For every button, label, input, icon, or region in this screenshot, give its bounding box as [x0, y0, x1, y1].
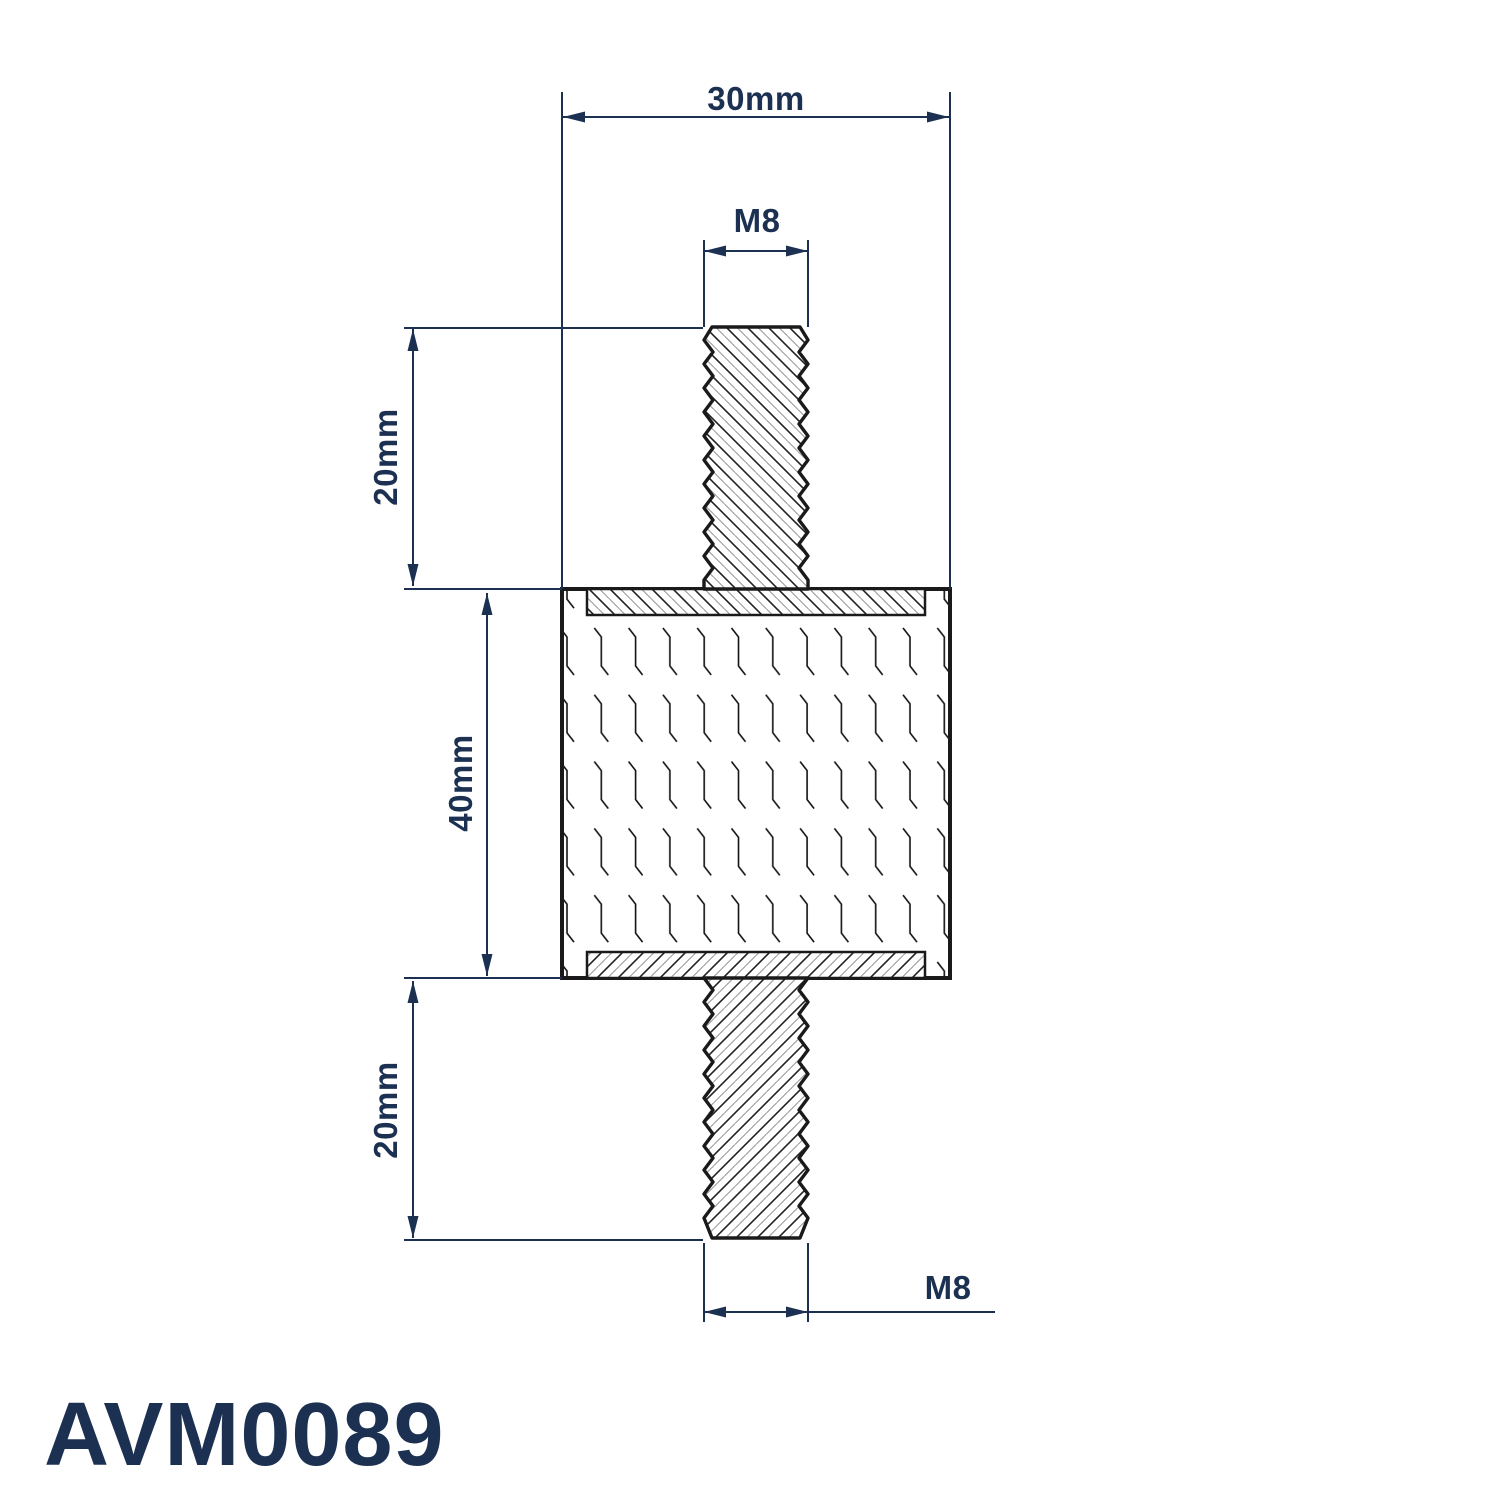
top-stud-thread — [704, 327, 808, 589]
arrowhead — [563, 112, 585, 123]
arrowhead — [408, 1216, 419, 1238]
arrowhead — [927, 112, 949, 123]
arrowhead — [408, 981, 419, 1003]
arrowhead — [786, 1307, 808, 1318]
part-number: AVM0089 — [44, 1384, 445, 1487]
arrowhead — [408, 564, 419, 586]
dim-label-body-height: 40mm — [442, 734, 480, 831]
dim-label-top-thread: M8 — [734, 202, 781, 240]
arrowhead — [786, 246, 808, 257]
dim-label-top-stud-length: 20mm — [367, 408, 405, 505]
dim-label-bottom-stud-length: 20mm — [367, 1061, 405, 1158]
bottom-stud-thread — [704, 978, 808, 1238]
rubber-knurl-texture — [564, 591, 948, 976]
bottom-flange — [587, 952, 925, 978]
dim-label-bottom-thread: M8 — [925, 1269, 972, 1307]
dim-label-overall-width: 30mm — [707, 80, 804, 118]
arrowhead — [704, 1307, 726, 1318]
top-flange — [587, 589, 925, 615]
arrowhead — [482, 593, 493, 615]
technical-drawing-page: 30mm M8 20mm 40mm 20mm M8 AVM0089 — [0, 0, 1500, 1500]
arrowhead — [482, 954, 493, 976]
mount-body-group — [562, 327, 950, 1238]
arrowhead — [408, 329, 419, 351]
arrowhead — [704, 246, 726, 257]
